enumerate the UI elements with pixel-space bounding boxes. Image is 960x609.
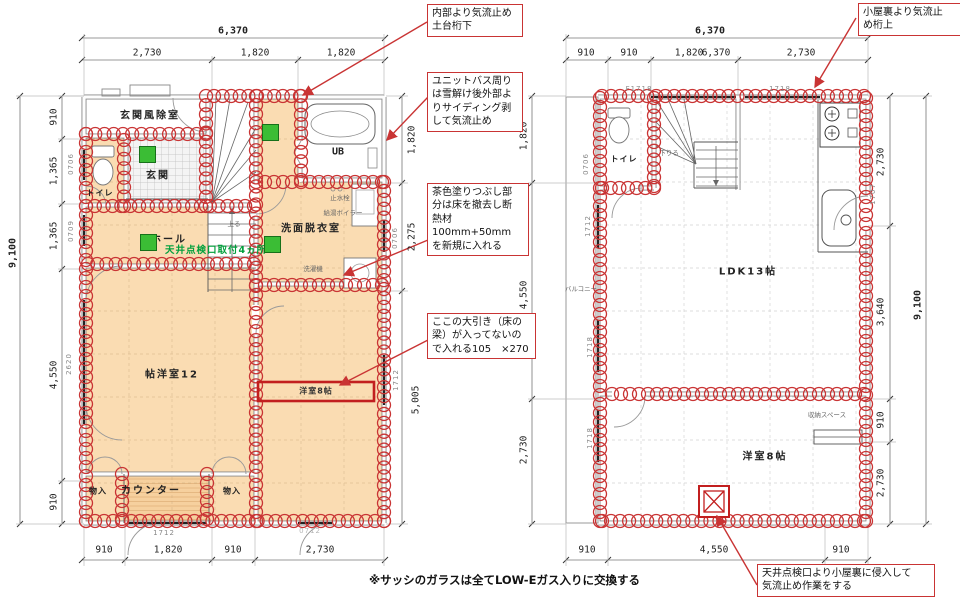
- dim-f1-top-1: 1,820: [241, 48, 270, 58]
- room-label-toilet-2f: トイレ: [611, 154, 638, 165]
- bottom-note: ※サッシのガラスは全てLOW-Eガス入りに交換する: [369, 572, 640, 588]
- dim-f1-right-2: 5,005: [411, 386, 421, 415]
- dim-f2-top-total: 6,370: [695, 26, 725, 37]
- dim-f2-right-1: 3,640: [876, 298, 886, 327]
- dim-f2-top-1: 910: [620, 48, 637, 58]
- callout-attic: 小屋裏より気流止 め桁上: [858, 3, 960, 36]
- room-label-ldk: LDK13帖: [719, 263, 777, 278]
- ceiling-hatch-square: [140, 234, 157, 251]
- dim-f2-right-0: 2,730: [876, 148, 886, 177]
- stair-down-label: 下りる: [659, 147, 679, 157]
- room-label-room8-1f: 洋室8帖: [299, 386, 333, 397]
- dim-f1-top-total: 6,370: [218, 26, 248, 37]
- dim-f1-left-1: 1,365: [49, 157, 59, 186]
- dim-f1-left-3: 4,550: [49, 361, 59, 390]
- dim-f2-right-2: 910: [876, 411, 886, 428]
- dim-f2-bottom-1: 4,550: [700, 545, 729, 555]
- ceiling-hatch-square: [264, 236, 281, 253]
- room-label-windbreak: 玄関風除室: [120, 107, 180, 122]
- window-code: 1718: [586, 336, 594, 358]
- dim-f2-bottom-2: 910: [832, 545, 849, 555]
- stop-valve-label: 止水栓: [330, 192, 350, 202]
- ceiling-hatch-square: [139, 146, 156, 163]
- callout-floor-beam: ここの大引き（床の 梁）が入ってないの で入れる105 ×270: [427, 313, 536, 359]
- dim-f2-bottom-0: 910: [578, 545, 595, 555]
- room-label-washroom: 洗面脱衣室: [281, 220, 341, 235]
- window-code: 0712: [299, 527, 321, 535]
- dim-f2-left-1: 4,550: [519, 281, 529, 310]
- ceiling-hatch-square: [262, 124, 279, 141]
- dim-f1-left-total: 9,100: [8, 238, 19, 268]
- green-note-label: 天井点検口取付4ヵ所: [165, 242, 267, 256]
- window-code: 1718: [769, 85, 791, 93]
- dim-f1-bottom-3: 2,730: [306, 545, 335, 555]
- floorplan-canvas: 玄関風除室 玄関 トイレ ホール 洗面脱衣室 UB 帖洋室12 洋室8帖 カウン…: [0, 0, 960, 609]
- dim-f2-top-2: 1,820: [675, 48, 704, 58]
- room-label-counter: カウンター: [121, 482, 181, 497]
- room-label-room12: 帖洋室12: [145, 366, 199, 381]
- dim-f2-right-3: 2,730: [876, 469, 886, 498]
- dim-f1-bottom-2: 910: [224, 545, 241, 555]
- dim-f1-right-1: 2,275: [407, 223, 417, 252]
- window-code: 0706: [582, 153, 590, 175]
- dim-f2-top-0: 910: [577, 48, 594, 58]
- room-label-bath: UB: [332, 147, 344, 158]
- room-label-closet1: 物入: [89, 486, 107, 497]
- window-code: 0709: [67, 220, 75, 242]
- window-code: 1712: [153, 529, 175, 537]
- boiler-label: 給湯ボイラー: [324, 207, 363, 217]
- callout-insulation: 茶色塗りつぶし部 分は床を撤去し断 熱材100mm+50mm を新規に入れる: [427, 183, 529, 256]
- dim-f1-left-4: 910: [49, 493, 59, 510]
- room-label-storage: 収納スペース: [808, 409, 846, 419]
- window-code: 1712: [392, 369, 400, 391]
- window-code: 1718: [586, 427, 594, 449]
- callout-unitbath: ユニットバス周り は雪解け後外部よ りサイディング剥 して気流止め: [427, 72, 523, 132]
- dim-f2-top-overlap: 6,370: [702, 48, 731, 58]
- stair-up-label: 上る: [228, 218, 241, 228]
- dim-f1-top-0: 2,730: [133, 48, 162, 58]
- dim-f1-right-0: 1,820: [407, 126, 417, 155]
- dim-f1-bottom-1: 1,820: [154, 545, 183, 555]
- dim-f1-left-2: 1,365: [49, 222, 59, 251]
- dim-f2-right-total: 9,100: [913, 290, 924, 320]
- room-label-balcony: バルコニー: [565, 283, 597, 293]
- callout-ceiling-hatch: 天井点検口より小屋裏に侵入して 気流止め作業をする: [757, 564, 935, 597]
- dim-f1-bottom-0: 910: [95, 545, 112, 555]
- window-code: 1712: [584, 215, 592, 237]
- dim-f1-top-2: 1,820: [327, 48, 356, 58]
- window-code: 0706: [67, 153, 75, 175]
- dim-f2-left-2: 2,730: [519, 436, 529, 465]
- room-label-genkan: 玄関: [146, 167, 170, 182]
- washer-label: 洗濯機: [303, 263, 323, 273]
- window-code: F1718: [626, 85, 653, 93]
- callout-airflow-sill: 内部より気流止め 土台桁下: [427, 4, 523, 37]
- dim-f2-top-3: 2,730: [787, 48, 816, 58]
- room-label-room8-2f: 洋室8帖: [743, 448, 788, 463]
- window-code: 0706: [391, 227, 399, 249]
- dim-f1-left-0: 910: [49, 108, 59, 125]
- room-label-toilet-1f: トイレ: [87, 188, 114, 199]
- window-code: 1707: [869, 183, 877, 205]
- window-code: 2620: [65, 353, 73, 375]
- room-label-closet2: 物入: [223, 486, 241, 497]
